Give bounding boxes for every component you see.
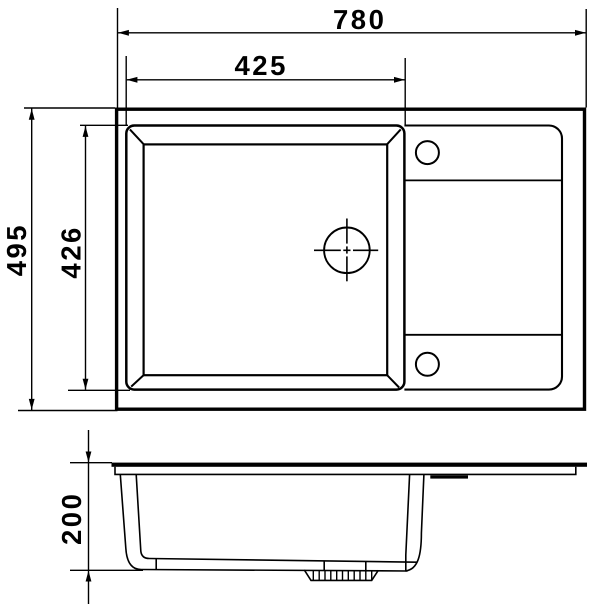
svg-text:425: 425	[235, 50, 288, 81]
svg-text:495: 495	[1, 223, 32, 276]
svg-text:426: 426	[55, 225, 86, 278]
svg-text:780: 780	[333, 4, 386, 35]
svg-text:200: 200	[56, 492, 87, 545]
